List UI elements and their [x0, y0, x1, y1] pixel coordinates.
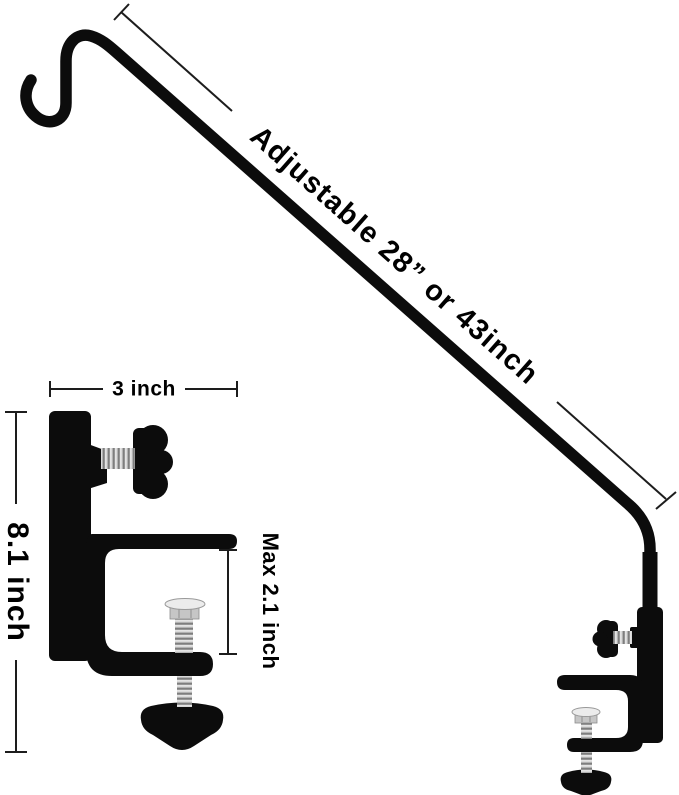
product-dimension-diagram: Adjustable 28” or 43inch 3 inch 8.1 inch…: [0, 0, 679, 795]
detail-knob-screw-threads: [101, 448, 135, 469]
detail-clamp-screw-threads-lower: [177, 676, 192, 707]
detail-clamp-screw-threads-upper: [175, 615, 193, 653]
detail-clamp-knob: [141, 703, 224, 751]
clamp-width-label: 3 inch: [112, 379, 176, 400]
overall-height-label: 8.1 inch: [2, 522, 32, 642]
detail-clamp-body: [86, 534, 237, 676]
desk-clamp-knob: [561, 770, 612, 795]
dimension-lines: [5, 4, 676, 752]
product-parts: [26, 35, 663, 795]
knob-screw-threads: [613, 631, 632, 644]
knob-collar-nut: [630, 627, 644, 648]
detail-mounting-tube: [49, 411, 91, 661]
hook-and-extension-pole: [26, 35, 650, 615]
clamp-screw-washer: [572, 708, 600, 717]
clamp-screw-threads-lower: [581, 752, 592, 773]
clamp-opening-label: Max 2.1 inch: [259, 533, 281, 670]
detail-clamp-screw-washer: [165, 599, 205, 610]
pole-length-tick-bottom: [656, 492, 676, 509]
desk-clamp-body: [557, 675, 643, 752]
detail-adjustment-knob: [133, 425, 173, 499]
product-diagram-canvas: [0, 0, 679, 795]
clamp-screw-threads-upper: [581, 721, 592, 739]
pole-length-line-upper: [121, 12, 232, 111]
